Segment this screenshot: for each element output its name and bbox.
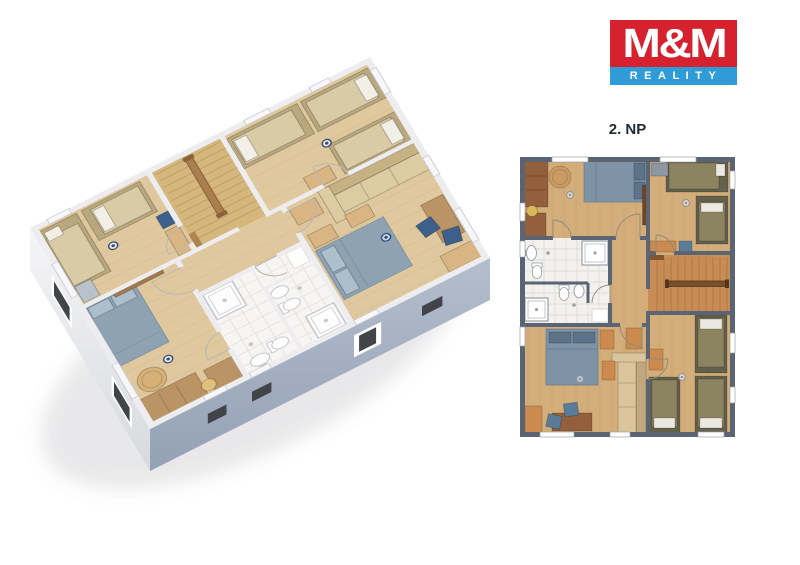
- real-estate-floorplan-page: M&M REALITY 2. NP: [0, 0, 800, 565]
- floor-3d-render: [0, 57, 510, 546]
- logo-brand-mark: M&M: [610, 20, 737, 67]
- floor-2d-plan: [520, 157, 735, 437]
- logo-brand-text: M&M: [622, 20, 725, 67]
- logo-tagline: REALITY: [610, 67, 737, 85]
- plan-title: 2. NP: [520, 121, 735, 138]
- mm-reality-logo: M&M REALITY: [610, 20, 737, 85]
